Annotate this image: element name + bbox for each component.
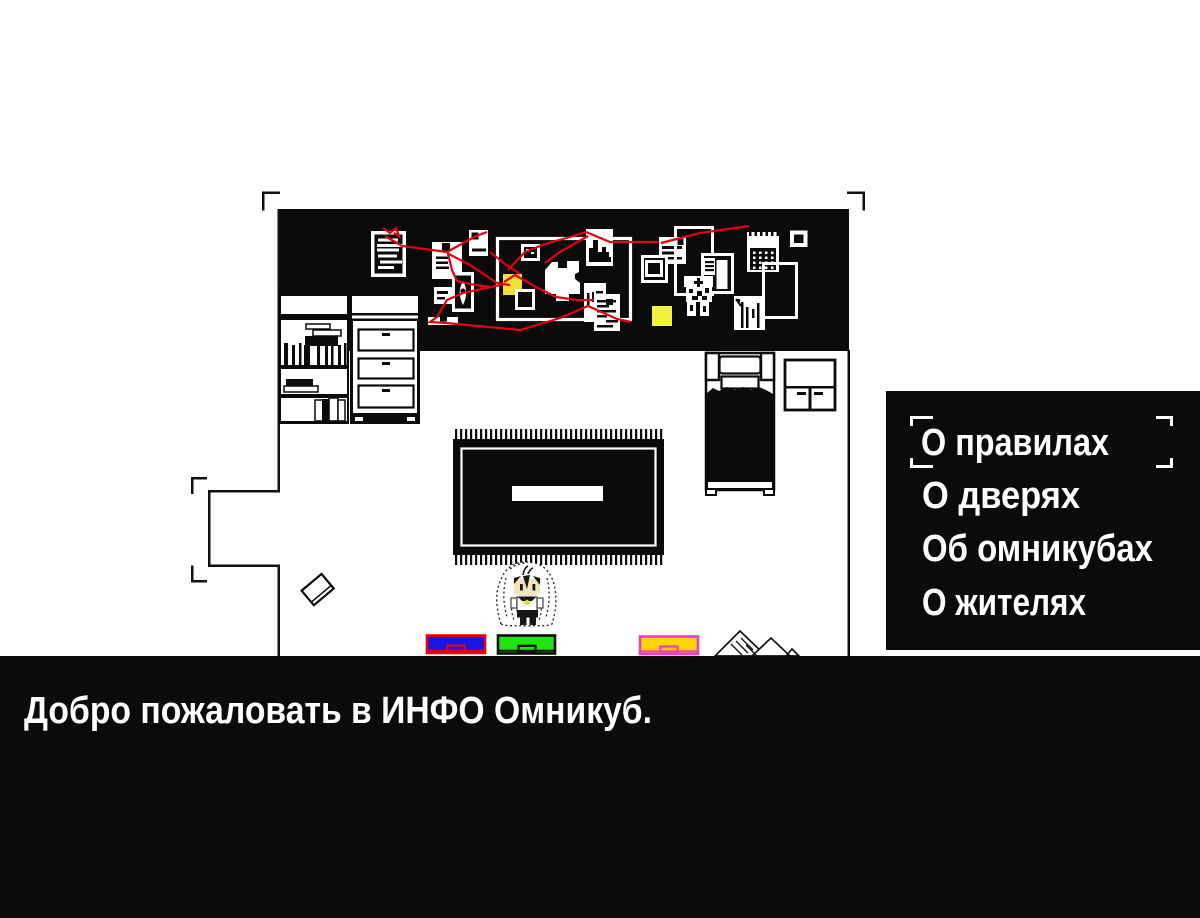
svg-text:О дверях: О дверях	[922, 475, 1080, 517]
svg-text:Об омникубах: Об омникубах	[922, 528, 1153, 570]
svg-text:О жителях: О жителях	[922, 582, 1086, 624]
svg-text:О правилах: О правилах	[921, 422, 1109, 464]
svg-text:Добро пожаловать в ИНФО Омнику: Добро пожаловать в ИНФО Омникуб.	[24, 690, 652, 732]
